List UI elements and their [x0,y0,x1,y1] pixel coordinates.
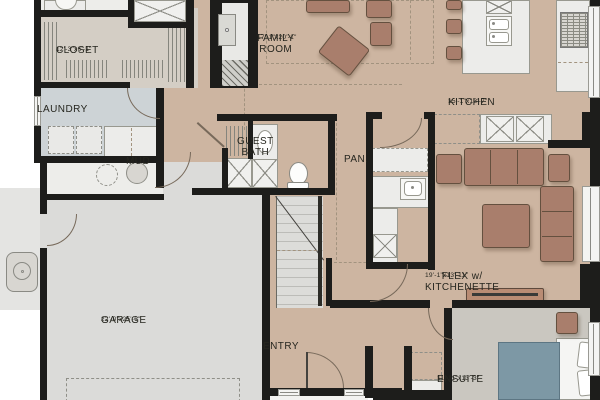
room-name: MUD [126,157,150,168]
floor-plan: CLOSET12'-3"x6'-1"LAUNDRYFAMILY ROOM17'-… [0,0,600,400]
room-name: ENTRY [263,342,299,353]
room-name: GUEST BATH [237,137,274,159]
room-labels-layer: CLOSET12'-3"x6'-1"LAUNDRYFAMILY ROOM17'-… [0,0,600,400]
room-name: LAUNDRY [37,105,88,116]
room-dimensions: 22'-0"x25'-6" [101,316,141,324]
room-dimensions: 11'-11"x13'-3" [437,375,479,383]
room-dimensions: 15'-1"x13'-7" [448,98,488,106]
room-name: PAN. [344,155,368,166]
room-dimensions: 12'-3"x6'-1" [56,46,92,54]
room-dimensions: 19'-1"x13'-11" [425,272,468,280]
room-dimensions: 17'-1"x20'-1" [257,34,297,42]
